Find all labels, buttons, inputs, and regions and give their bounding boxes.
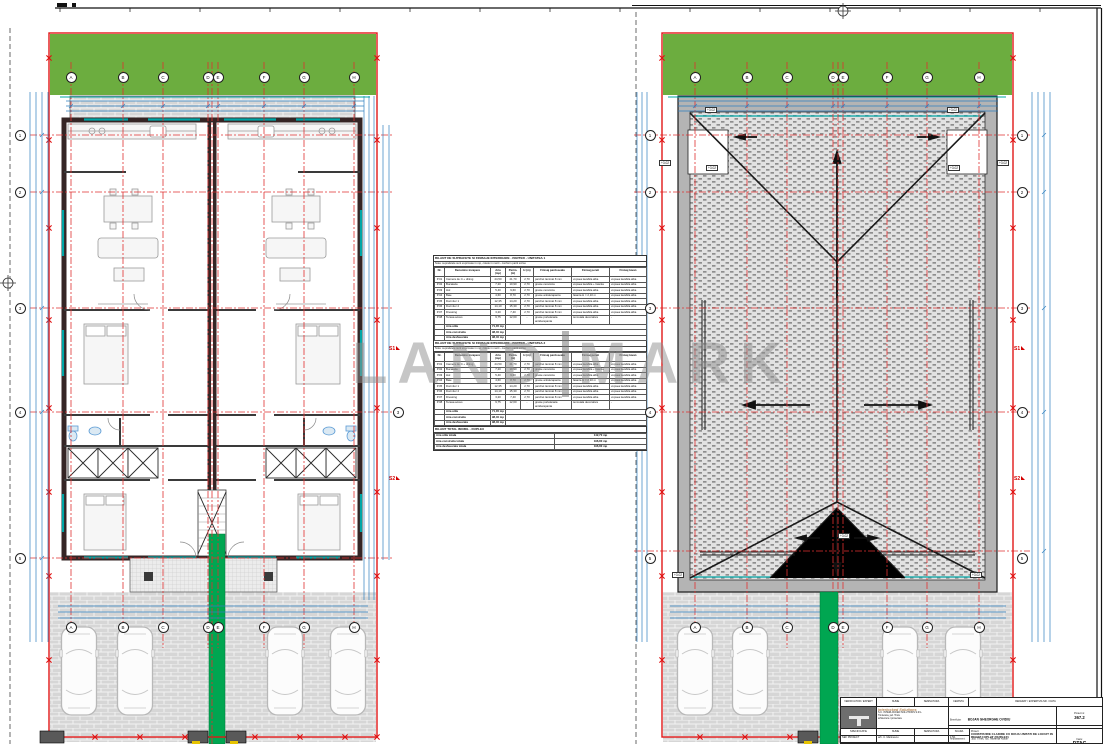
semnatura-label: SEMNATURA <box>915 698 949 706</box>
schedule-row: P.08 Terasa acces 9,75 12,60 - gresie po… <box>435 315 647 324</box>
company-logo <box>841 707 877 728</box>
schedule-header-row: Nr.Denumire incapere Aria (mp)Perim. (m)… <box>435 268 647 277</box>
schedule-cell: Terasa acces <box>445 400 491 409</box>
schedule-cell: tencuiala decorativa <box>572 315 610 324</box>
verificator-label: VERIFICATOR / EXPERT <box>841 698 877 706</box>
drawing-sheet: ABCDEFGH ABCDEFGH ABCDEFGH ABCDEFGH 1234… <box>0 0 1108 744</box>
spec-signature <box>915 736 949 742</box>
project-number-cell: Proiect nr. 367.2 <box>1056 707 1102 725</box>
project-title-value: CONSTRUIRE CLADIRE CU DOUA UNITATI DE LO… <box>971 733 1055 740</box>
section-marker-s1: S1 <box>1014 346 1025 352</box>
spec-scale: 1:50 <box>949 736 969 742</box>
schedule-cell: 9,75 <box>491 315 506 324</box>
schedule-cell: gresie portelanata antiderapanta <box>534 315 572 324</box>
lawn-right <box>663 34 1012 95</box>
spec-name: arh. C. Marinescu <box>877 736 915 742</box>
schedule-cell: - <box>521 400 534 409</box>
roof-plan <box>634 33 1050 744</box>
schedule-cell: Terasa acces <box>445 315 491 324</box>
schedule-cell: 12,60 <box>506 315 521 324</box>
schedule-cell: 9,75 <box>491 400 506 409</box>
schedule-total-row: Aria desfasurata 98,40 mp <box>435 420 647 425</box>
beneficiar-value: BOJAN GHEORGHE OVIDIU <box>967 717 1012 722</box>
total-value: 98,40 mp <box>491 420 506 425</box>
semnatura-label: SEMNATURA <box>915 729 949 735</box>
nume-label: NUME <box>877 698 915 706</box>
schedule-row: P.08 Terasa acces 9,75 12,60 - gresie po… <box>435 400 647 409</box>
elevation-label: +3.02 <box>947 107 959 113</box>
schedule-header-row: Nr.Denumire incapere Aria (mp)Perim. (m)… <box>435 353 647 362</box>
company-info: Interlocked Solutions S.C. INTERLOCKED S… <box>877 707 949 728</box>
schedule-cell: 12,60 <box>506 400 521 409</box>
schedule-cell: - <box>610 315 647 324</box>
terrace-rear <box>70 96 355 119</box>
elevation-label: +3.02 <box>997 160 1009 166</box>
total-label: Aria desfasurata <box>445 335 491 340</box>
phase-cell: Faza: DTAC <box>1056 729 1102 744</box>
grid-bubble: 3 <box>393 407 404 418</box>
wardrobe-band <box>68 448 158 478</box>
spec-role: SEF PROIECT <box>841 736 877 742</box>
title-block: VERIFICATOR / EXPERT NUME SEMNATURA CERI… <box>840 697 1103 744</box>
company-line: arhitectura / proiectare <box>878 718 947 721</box>
cerinta-label: CERINTA <box>949 698 969 706</box>
nume-label: NUME <box>877 729 915 735</box>
specificatie-label: SPECIFICATIE <box>841 729 877 735</box>
summary-row: Aria desfasurata totala 196,80 mp <box>435 444 647 449</box>
elevation-label: +3.02 <box>948 165 960 171</box>
schedule-cell: - <box>521 315 534 324</box>
area-schedule-table: BILANT DE SUPRAFETE SI FINISAJE INTERIOA… <box>433 255 647 451</box>
lawn-left <box>50 34 376 95</box>
schedule-cell: - <box>610 400 647 409</box>
schedule-cell: tencuiala decorativa <box>572 400 610 409</box>
walkway-right <box>820 592 838 744</box>
referat-label: REFERAT / EXPERTIZA NR. / DATA <box>969 698 1102 706</box>
schedule-cell: P.08 <box>435 315 445 324</box>
total-value: 98,40 mp <box>491 335 506 340</box>
summary-label: Aria desfasurata totala <box>435 444 555 449</box>
floor-plan <box>30 33 392 744</box>
schedule-cell: gresie portelanata antiderapanta <box>534 400 572 409</box>
schedule-cell: P.08 <box>435 400 445 409</box>
elevation-label: +3.02 <box>659 160 671 166</box>
schedule-total-row: Aria desfasurata 98,40 mp <box>435 335 647 340</box>
elevation-label: +3.02 <box>838 533 850 539</box>
section-marker-s2: S2 <box>389 476 400 482</box>
section-marker-s1: S1 <box>389 346 400 352</box>
elevation-label: +3.02 <box>970 572 982 578</box>
section-marker-s2: S2 <box>1014 476 1025 482</box>
elevation-label: +3.02 <box>672 572 684 578</box>
project-number-value: 367.2 <box>1074 715 1084 720</box>
summary-value: 196,80 mp <box>555 444 647 449</box>
walkway-left <box>209 534 225 744</box>
project-title-cell: Proiect: CONSTRUIRE CLADIRE CU DOUA UNIT… <box>970 729 1056 744</box>
elevation-label: +3.02 <box>706 165 718 171</box>
scara-label: SCARA <box>949 729 969 735</box>
elevation-label: +3.02 <box>705 107 717 113</box>
beneficiar-label: Beneficiar: <box>949 718 962 722</box>
total-label: Aria desfasurata <box>445 420 491 425</box>
